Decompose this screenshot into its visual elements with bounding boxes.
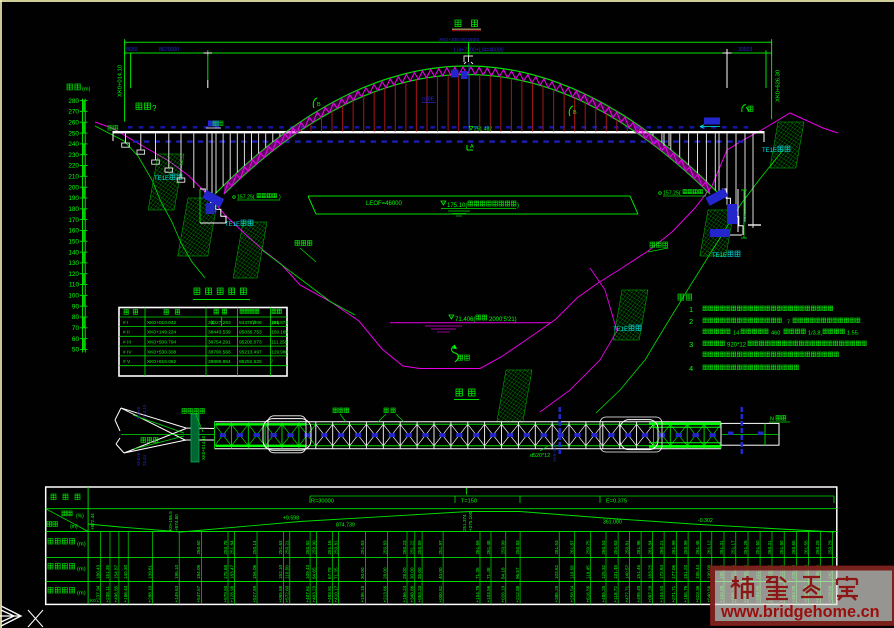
svg-text:261.98: 261.98 bbox=[636, 540, 641, 554]
svg-text:71.48: 71.48 bbox=[486, 567, 491, 579]
svg-text:+493.91: +493.91 bbox=[327, 585, 332, 602]
svg-text:# V: # V bbox=[123, 359, 131, 365]
svg-text:+385.29: +385.29 bbox=[554, 585, 559, 602]
svg-text:+238.11: +238.11 bbox=[105, 586, 110, 603]
svg-text:156.06: 156.06 bbox=[252, 565, 257, 579]
svg-text:920*12: 920*12 bbox=[727, 343, 747, 349]
svg-text:8650: 8650 bbox=[126, 47, 138, 53]
svg-text:84.65: 84.65 bbox=[311, 567, 316, 579]
svg-text:+495.49: +495.49 bbox=[636, 585, 641, 602]
svg-text:TE1E: TE1E bbox=[712, 253, 727, 259]
svg-text:# III: # III bbox=[123, 340, 131, 346]
svg-text:163.25: 163.25 bbox=[647, 565, 652, 579]
svg-text:+053.23: +053.23 bbox=[417, 585, 422, 602]
svg-text:XK0+010.042: XK0+010.042 bbox=[147, 320, 177, 326]
svg-text:250.75: 250.75 bbox=[586, 540, 591, 554]
svg-text:260.29: 260.29 bbox=[815, 540, 820, 554]
svg-text:(m): (m) bbox=[77, 567, 86, 573]
svg-text:1: 1 bbox=[689, 305, 693, 314]
svg-text:TE1E: TE1E bbox=[613, 327, 628, 333]
svg-text:B: B bbox=[573, 110, 577, 116]
svg-text:+212.88: +212.88 bbox=[515, 585, 520, 602]
svg-text:250.89: 250.89 bbox=[417, 540, 422, 554]
svg-text:+055.68: +055.68 bbox=[278, 585, 283, 602]
svg-text:): ) bbox=[705, 191, 707, 197]
svg-text:261.48: 261.48 bbox=[486, 540, 491, 554]
svg-text:260.53: 260.53 bbox=[601, 540, 606, 554]
svg-text:250.83: 250.83 bbox=[515, 540, 520, 554]
svg-text:71.35: 71.35 bbox=[475, 567, 480, 579]
svg-text:250.14: 250.14 bbox=[252, 540, 257, 554]
svg-text:+237.94: +237.94 bbox=[95, 585, 100, 602]
svg-text:+348.86: +348.86 bbox=[410, 585, 415, 602]
svg-text:175.68: 175.68 bbox=[223, 565, 228, 579]
svg-text:261.46: 261.46 bbox=[695, 540, 700, 554]
svg-text:+103.56: +103.56 bbox=[486, 585, 491, 602]
svg-text:3050: 3050 bbox=[742, 213, 747, 224]
svg-text:251.874: 251.874 bbox=[272, 320, 289, 325]
svg-text:71.35: 71.35 bbox=[333, 567, 338, 579]
svg-text:261.69: 261.69 bbox=[475, 540, 480, 554]
svg-text:95036.753: 95036.753 bbox=[239, 330, 262, 336]
svg-text:260.65: 260.65 bbox=[791, 540, 796, 554]
svg-text:35.00: 35.00 bbox=[417, 567, 422, 579]
svg-text:95252.525: 95252.525 bbox=[239, 359, 262, 365]
svg-text:8670000: 8670000 bbox=[159, 47, 179, 53]
svg-text:3050: 3050 bbox=[213, 201, 218, 212]
svg-text:-0.302: -0.302 bbox=[698, 518, 713, 524]
svg-text:184.08: 184.08 bbox=[196, 565, 201, 579]
svg-text:170: 170 bbox=[68, 217, 79, 224]
svg-text:28.00: 28.00 bbox=[402, 567, 407, 579]
svg-text:): ) bbox=[517, 203, 519, 209]
svg-text:251.482: 251.482 bbox=[474, 127, 492, 133]
svg-text:(m): (m) bbox=[82, 87, 91, 93]
svg-text:+288.10: +288.10 bbox=[147, 585, 152, 602]
svg-text:250.78: 250.78 bbox=[223, 540, 228, 554]
svg-text:36327.283: 36327.283 bbox=[208, 320, 231, 326]
svg-text:130: 130 bbox=[68, 260, 79, 267]
svg-text:# II: # II bbox=[123, 330, 130, 336]
svg-text:70: 70 bbox=[72, 325, 80, 332]
svg-text:250.81: 250.81 bbox=[624, 540, 629, 554]
svg-text:+104.53: +104.53 bbox=[659, 585, 664, 602]
svg-text:LEOF=46000: LEOF=46000 bbox=[366, 201, 403, 207]
svg-text:40.00: 40.00 bbox=[438, 567, 443, 579]
svg-text:186.44: 186.44 bbox=[695, 565, 700, 579]
svg-text:251.60: 251.60 bbox=[755, 540, 760, 554]
svg-text:4: 4 bbox=[689, 364, 693, 373]
svg-text:+195.18: +195.18 bbox=[360, 585, 365, 602]
svg-text:152.10: 152.10 bbox=[278, 565, 283, 579]
svg-text:260: 260 bbox=[68, 119, 79, 126]
svg-text:180: 180 bbox=[68, 206, 79, 213]
svg-text:60: 60 bbox=[72, 336, 80, 343]
svg-text:172.84: 172.84 bbox=[659, 565, 664, 579]
svg-text:251.374: 251.374 bbox=[462, 514, 467, 531]
svg-text:140: 140 bbox=[68, 249, 79, 256]
svg-text:+149.63: +149.63 bbox=[174, 585, 179, 602]
svg-text:+579.50: +579.50 bbox=[223, 585, 228, 602]
svg-text:140.30: 140.30 bbox=[123, 565, 128, 579]
svg-text:?: ? bbox=[152, 104, 157, 113]
svg-text:251.17: 251.17 bbox=[731, 540, 736, 554]
svg-text:67.79: 67.79 bbox=[327, 567, 332, 579]
svg-text:251.63: 251.63 bbox=[360, 540, 365, 554]
svg-text:261.53: 261.53 bbox=[554, 540, 559, 554]
svg-text:# IV: # IV bbox=[123, 349, 132, 355]
svg-text:+165.76: +165.76 bbox=[683, 585, 688, 602]
svg-text:+128.98: +128.98 bbox=[229, 585, 234, 602]
svg-text:d520*12: d520*12 bbox=[530, 453, 550, 459]
svg-text:+375.100: +375.100 bbox=[468, 511, 473, 531]
svg-text:B: B bbox=[317, 102, 321, 108]
svg-text:251.26: 251.26 bbox=[743, 540, 748, 554]
svg-text:210: 210 bbox=[68, 174, 79, 181]
svg-text:+874.80: +874.80 bbox=[174, 514, 179, 531]
svg-text:261.87: 261.87 bbox=[570, 540, 575, 554]
svg-text:131.45: 131.45 bbox=[613, 565, 618, 579]
svg-text:177.06: 177.06 bbox=[671, 565, 676, 579]
svg-text:874.739: 874.739 bbox=[336, 523, 355, 529]
svg-text:+527.89: +527.89 bbox=[252, 585, 257, 602]
svg-text:(m): (m) bbox=[77, 542, 86, 548]
svg-text:260.31: 260.31 bbox=[767, 540, 772, 554]
svg-text:100: 100 bbox=[68, 293, 79, 300]
svg-text:25.44: 25.44 bbox=[142, 454, 147, 466]
svg-text:XK0+500.794: XK0+500.794 bbox=[147, 340, 177, 346]
svg-text:E=0.375: E=0.375 bbox=[606, 499, 627, 505]
svg-text:361.000: 361.000 bbox=[603, 520, 622, 526]
svg-text:109.43: 109.43 bbox=[305, 565, 310, 579]
svg-text:261.84: 261.84 bbox=[647, 540, 652, 554]
svg-text:119.45: 119.45 bbox=[586, 565, 591, 579]
svg-text:110.50: 110.50 bbox=[285, 565, 290, 579]
svg-text:+118.72: +118.72 bbox=[613, 586, 618, 603]
svg-text:94378.308: 94378.308 bbox=[239, 320, 262, 326]
svg-text:XK0+014.10: XK0+014.10 bbox=[201, 435, 206, 460]
svg-text:014.10: 014.10 bbox=[142, 404, 147, 418]
svg-text:+186.43: +186.43 bbox=[123, 585, 128, 602]
svg-text:250.81: 250.81 bbox=[333, 540, 338, 554]
svg-text:XK0+530.308: XK0+530.308 bbox=[147, 349, 177, 355]
svg-text:+154.78: +154.78 bbox=[475, 585, 480, 602]
svg-text:(%): (%) bbox=[76, 513, 84, 519]
svg-text:183.47: 183.47 bbox=[229, 565, 234, 579]
svg-text:140.57: 140.57 bbox=[624, 565, 629, 579]
svg-text:30.00: 30.00 bbox=[410, 567, 415, 579]
svg-text:260.82: 260.82 bbox=[305, 540, 310, 554]
svg-text:(m): (m) bbox=[77, 591, 86, 597]
svg-text:+485.25: +485.25 bbox=[601, 585, 606, 602]
svg-text:220: 220 bbox=[68, 163, 79, 170]
svg-text:139.81: 139.81 bbox=[147, 565, 152, 579]
svg-text:460: 460 bbox=[771, 331, 780, 337]
svg-text:+496.85: +496.85 bbox=[114, 585, 119, 602]
svg-text:+213.66: +213.66 bbox=[382, 585, 387, 602]
svg-text:A: A bbox=[470, 144, 474, 150]
svg-text:160: 160 bbox=[68, 228, 79, 235]
svg-text:151.35: 151.35 bbox=[105, 565, 110, 579]
svg-text:181.20: 181.20 bbox=[683, 565, 688, 579]
svg-text:K0+186.5: K0+186.5 bbox=[168, 511, 173, 531]
svg-text:250.29: 250.29 bbox=[827, 540, 832, 554]
svg-text:): ) bbox=[279, 195, 281, 201]
svg-text:XK0+0: XK0+0 bbox=[136, 406, 141, 420]
svg-text:195.10: 195.10 bbox=[174, 565, 179, 579]
svg-text:250.99: 250.99 bbox=[501, 540, 506, 554]
svg-text:154.87: 154.87 bbox=[114, 565, 119, 579]
svg-text:261.12: 261.12 bbox=[707, 540, 712, 554]
svg-text:2: 2 bbox=[689, 317, 693, 326]
svg-text:270: 270 bbox=[68, 109, 79, 116]
svg-text:150: 150 bbox=[68, 238, 79, 245]
svg-text:251.63: 251.63 bbox=[613, 540, 618, 554]
svg-text:260.23: 260.23 bbox=[402, 540, 407, 554]
svg-text:200: 200 bbox=[68, 184, 79, 191]
svg-text:XK0+0: XK0+0 bbox=[136, 452, 141, 466]
svg-text:+477.71: +477.71 bbox=[624, 585, 629, 602]
svg-text:+258.54: +258.54 bbox=[570, 585, 575, 602]
svg-text:L/4+7500+L/4=46000: L/4+7500+L/4=46000 bbox=[454, 47, 504, 53]
svg-text:XK0+149.224: XK0+149.224 bbox=[147, 330, 177, 336]
svg-text:XK0+500: XK0+500 bbox=[552, 443, 557, 462]
svg-text:TE1E: TE1E bbox=[762, 148, 777, 154]
svg-text:+000.82: +000.82 bbox=[438, 585, 443, 602]
svg-text:251.16: 251.16 bbox=[327, 540, 332, 554]
svg-text:XK0+626.30: XK0+626.30 bbox=[776, 70, 782, 102]
svg-text:# I: # I bbox=[123, 320, 128, 326]
svg-text:38886.854: 38886.854 bbox=[208, 359, 231, 365]
svg-text:261.55: 261.55 bbox=[803, 540, 808, 554]
svg-text:XK0+616.062: XK0+616.062 bbox=[147, 359, 177, 365]
svg-text:250.21: 250.21 bbox=[285, 540, 290, 554]
svg-text:280: 280 bbox=[68, 98, 79, 105]
svg-text:n10E: n10E bbox=[422, 97, 435, 103]
svg-text:240: 240 bbox=[68, 141, 79, 148]
svg-text:38754.291: 38754.291 bbox=[208, 340, 231, 346]
svg-text:14: 14 bbox=[733, 331, 739, 337]
svg-text:251.63: 251.63 bbox=[278, 540, 283, 554]
svg-text:129.980: 129.980 bbox=[272, 349, 289, 354]
svg-text:28.00: 28.00 bbox=[382, 567, 387, 579]
svg-text:250.83: 250.83 bbox=[382, 540, 387, 554]
svg-text:+0.598: +0.598 bbox=[283, 516, 299, 522]
svg-text:110: 110 bbox=[69, 282, 80, 289]
svg-text:+616.56: +616.56 bbox=[586, 585, 591, 602]
svg-text:251.22: 251.22 bbox=[410, 540, 415, 554]
svg-text:96.57: 96.57 bbox=[515, 567, 520, 579]
svg-text:157.25(: 157.25( bbox=[237, 195, 255, 201]
svg-text:250.99: 250.99 bbox=[683, 540, 688, 554]
svg-text:TE1E: TE1E bbox=[225, 222, 240, 228]
svg-text:190: 190 bbox=[68, 195, 79, 202]
svg-text:261.99: 261.99 bbox=[671, 540, 676, 554]
svg-text:+271.71: +271.71 bbox=[671, 585, 676, 602]
svg-text:+403.23: +403.23 bbox=[311, 585, 316, 602]
svg-text:XK0+014.10: XK0+014.10 bbox=[118, 65, 124, 97]
svg-text:260.21: 260.21 bbox=[659, 540, 664, 554]
svg-text:251.97: 251.97 bbox=[438, 540, 443, 554]
svg-text:157.25(: 157.25( bbox=[663, 191, 681, 197]
svg-text:261.31: 261.31 bbox=[719, 540, 724, 554]
svg-text:84.18: 84.18 bbox=[501, 567, 506, 579]
svg-text:30503: 30503 bbox=[738, 47, 753, 53]
svg-text:71.406(: 71.406( bbox=[455, 317, 475, 323]
svg-text:38790.568: 38790.568 bbox=[208, 349, 231, 355]
svg-text:80: 80 bbox=[72, 314, 80, 321]
svg-text:103.62: 103.62 bbox=[554, 565, 559, 579]
svg-text:38443.539: 38443.539 bbox=[208, 330, 231, 336]
svg-text:120: 120 bbox=[68, 271, 79, 278]
svg-text:1/3.8,: 1/3.8, bbox=[808, 331, 822, 337]
svg-text:30.00: 30.00 bbox=[360, 567, 365, 579]
svg-text:261.80: 261.80 bbox=[779, 540, 784, 554]
svg-text:50: 50 bbox=[72, 347, 80, 354]
svg-text:(m): (m) bbox=[70, 524, 78, 530]
svg-text:www.bridgehome.cn: www.bridgehome.cn bbox=[720, 603, 880, 621]
svg-text:+407.61: +407.61 bbox=[305, 585, 310, 602]
svg-text:90: 90 bbox=[72, 303, 80, 310]
svg-text:2000'5'21): 2000'5'21) bbox=[489, 317, 517, 323]
svg-text:7: 7 bbox=[787, 320, 790, 326]
svg-text:180.43: 180.43 bbox=[95, 565, 100, 579]
svg-text:250.90: 250.90 bbox=[311, 540, 316, 554]
svg-text:150.169: 150.169 bbox=[272, 330, 289, 335]
svg-text:251.84: 251.84 bbox=[229, 540, 234, 554]
svg-text:TE1E: TE1E bbox=[154, 176, 169, 182]
svg-text:151.46: 151.46 bbox=[636, 565, 641, 579]
svg-text:+410.17: +410.17 bbox=[333, 585, 338, 602]
svg-text:+026.19: +026.19 bbox=[501, 585, 506, 602]
svg-text:260.60: 260.60 bbox=[196, 540, 201, 554]
svg-text:110.58: 110.58 bbox=[570, 565, 575, 579]
svg-text:R=30000: R=30000 bbox=[311, 499, 334, 505]
svg-text:+087.28: +087.28 bbox=[647, 585, 652, 602]
svg-text:125.32: 125.32 bbox=[601, 565, 606, 579]
svg-text:3: 3 bbox=[689, 340, 693, 349]
svg-text:+023.36: +023.36 bbox=[695, 585, 700, 602]
svg-text:+547.57: +547.57 bbox=[196, 585, 201, 602]
svg-text:250: 250 bbox=[68, 130, 79, 137]
svg-text:+872.44: +872.44 bbox=[90, 513, 95, 530]
svg-text:1.55.: 1.55. bbox=[847, 331, 860, 337]
svg-text:+166.24: +166.24 bbox=[402, 585, 407, 602]
svg-text:111.258: 111.258 bbox=[272, 340, 288, 345]
svg-text:T=150: T=150 bbox=[461, 499, 477, 505]
svg-text:230: 230 bbox=[68, 152, 79, 159]
svg-text:95213.497: 95213.497 bbox=[239, 349, 262, 355]
svg-text:95200.073: 95200.073 bbox=[239, 340, 262, 346]
svg-text:+572.60: +572.60 bbox=[285, 585, 290, 602]
